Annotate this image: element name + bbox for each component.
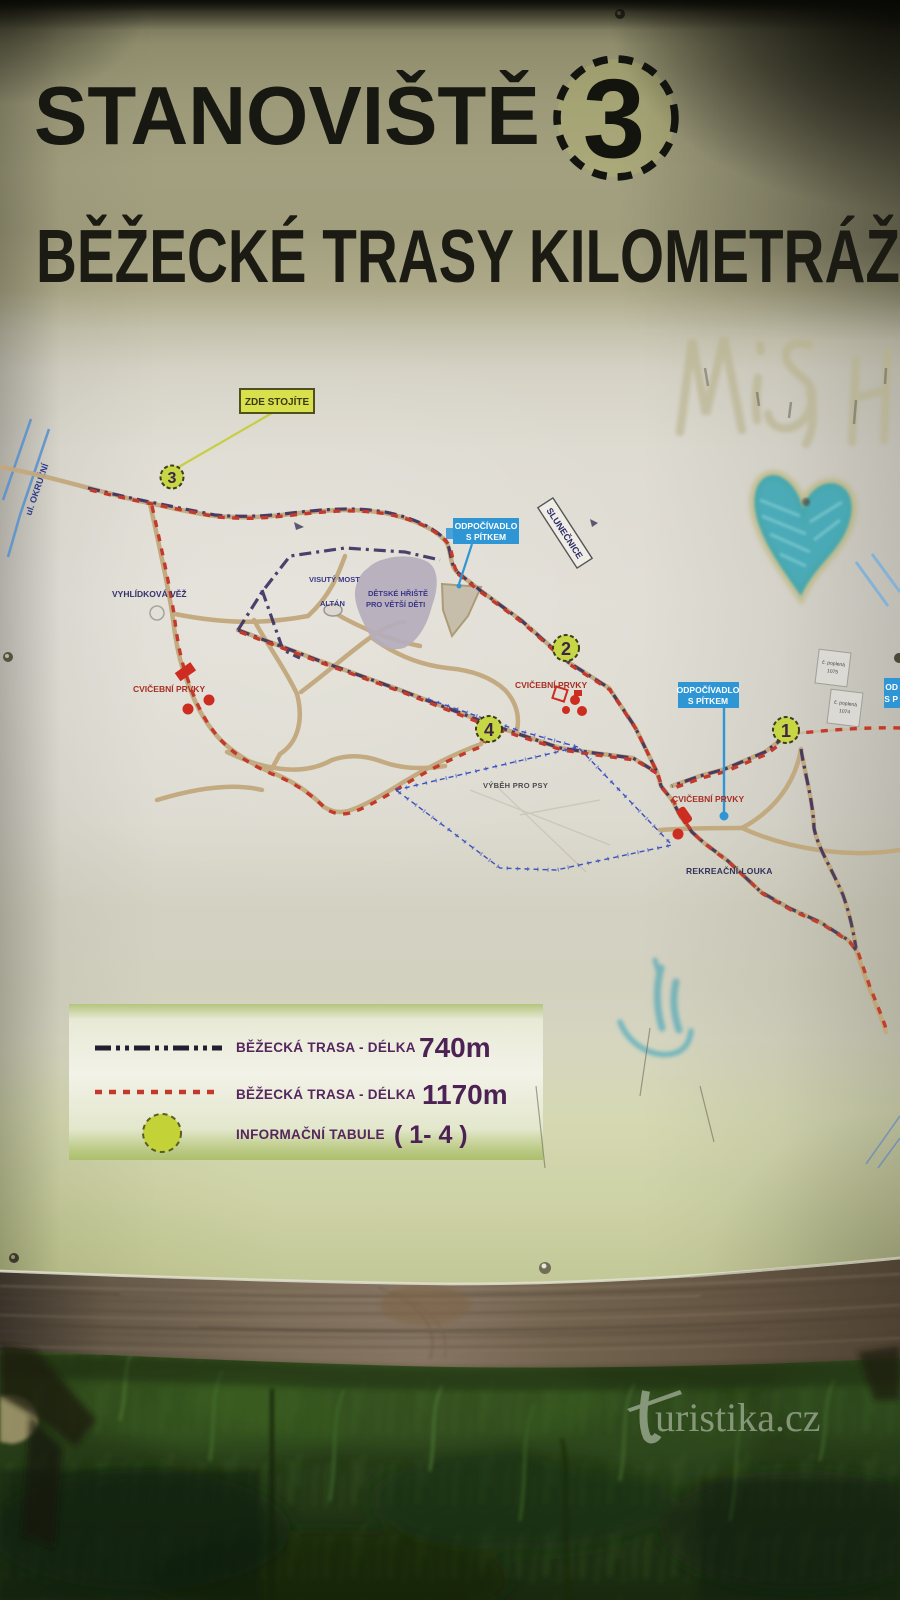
svg-text:DĚTSKÉ HŘIŠTĚ: DĚTSKÉ HŘIŠTĚ <box>368 589 428 598</box>
svg-text:ALTÁN: ALTÁN <box>320 599 345 608</box>
svg-text:2: 2 <box>561 639 571 659</box>
svg-text:VÝBĚH PRO PSY: VÝBĚH PRO PSY <box>483 781 548 790</box>
svg-text:4: 4 <box>484 720 494 740</box>
svg-text:3: 3 <box>168 470 177 487</box>
svg-text:S PÍTKEM: S PÍTKEM <box>466 532 506 542</box>
svg-text:1170m: 1170m <box>422 1079 508 1110</box>
svg-text:INFORMAČNÍ TABULE: INFORMAČNÍ TABULE <box>236 1127 385 1142</box>
svg-text:740m: 740m <box>419 1032 491 1063</box>
svg-text:BĚŽECKÁ TRASA - DÉLKA: BĚŽECKÁ TRASA - DÉLKA <box>236 1040 416 1055</box>
svg-text:PRO VĚTŠÍ DĚTI: PRO VĚTŠÍ DĚTI <box>366 600 425 609</box>
svg-text:VYHLÍDKOVÁ VĚŽ: VYHLÍDKOVÁ VĚŽ <box>112 588 187 599</box>
svg-text:CVIČEBNÍ PRVKY: CVIČEBNÍ PRVKY <box>672 793 744 804</box>
svg-text:VISUTÝ MOST: VISUTÝ MOST <box>309 575 360 584</box>
svg-text:CVIČEBNÍ PRVKY: CVIČEBNÍ PRVKY <box>515 679 587 690</box>
svg-text:1: 1 <box>781 721 791 741</box>
svg-text:SLUNEČNICE: SLUNEČNICE <box>544 505 585 560</box>
svg-text:S PÍTKEM: S PÍTKEM <box>688 696 728 706</box>
svg-text:S P: S P <box>884 694 898 704</box>
svg-text:BĚŽECKÁ TRASA - DÉLKA: BĚŽECKÁ TRASA - DÉLKA <box>236 1087 416 1102</box>
svg-text:uristika.cz: uristika.cz <box>655 1395 821 1440</box>
svg-text:ZDE STOJÍTE: ZDE STOJÍTE <box>245 395 310 408</box>
svg-text:ODPOČÍVADLO: ODPOČÍVADLO <box>677 684 740 695</box>
svg-text:( 1- 4 ): ( 1- 4 ) <box>394 1121 468 1149</box>
svg-text:CVIČEBNÍ PRVKY: CVIČEBNÍ PRVKY <box>133 683 205 694</box>
svg-text:OD: OD <box>885 682 898 692</box>
svg-text:ODPOČÍVADLO: ODPOČÍVADLO <box>455 520 518 531</box>
